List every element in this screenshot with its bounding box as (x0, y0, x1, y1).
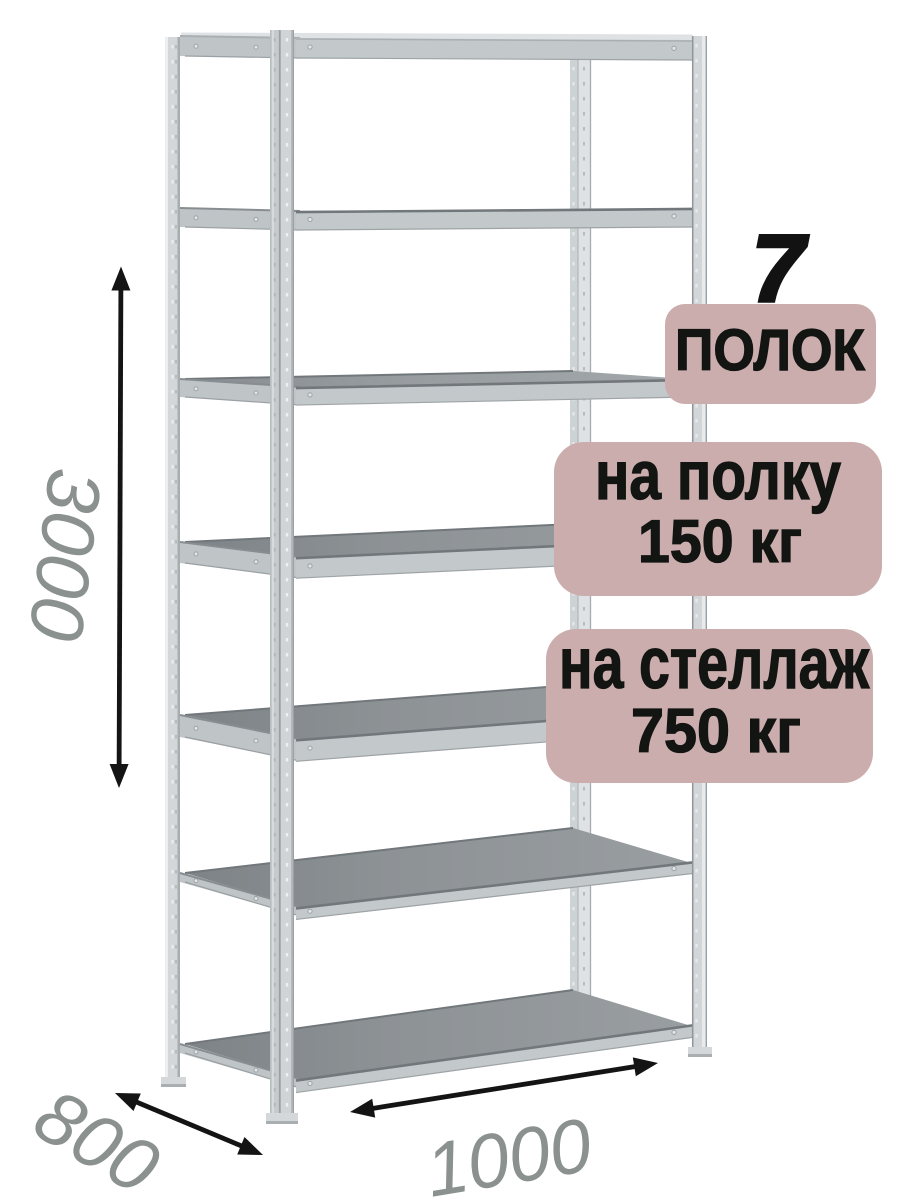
svg-text:ПОЛОК: ПОЛОК (675, 318, 866, 383)
svg-text:на стеллаж: на стеллаж (559, 624, 870, 704)
svg-text:750 кг: 750 кг (631, 697, 801, 766)
svg-text:150 кг: 150 кг (638, 508, 802, 575)
svg-text:на полку: на полку (595, 437, 841, 514)
